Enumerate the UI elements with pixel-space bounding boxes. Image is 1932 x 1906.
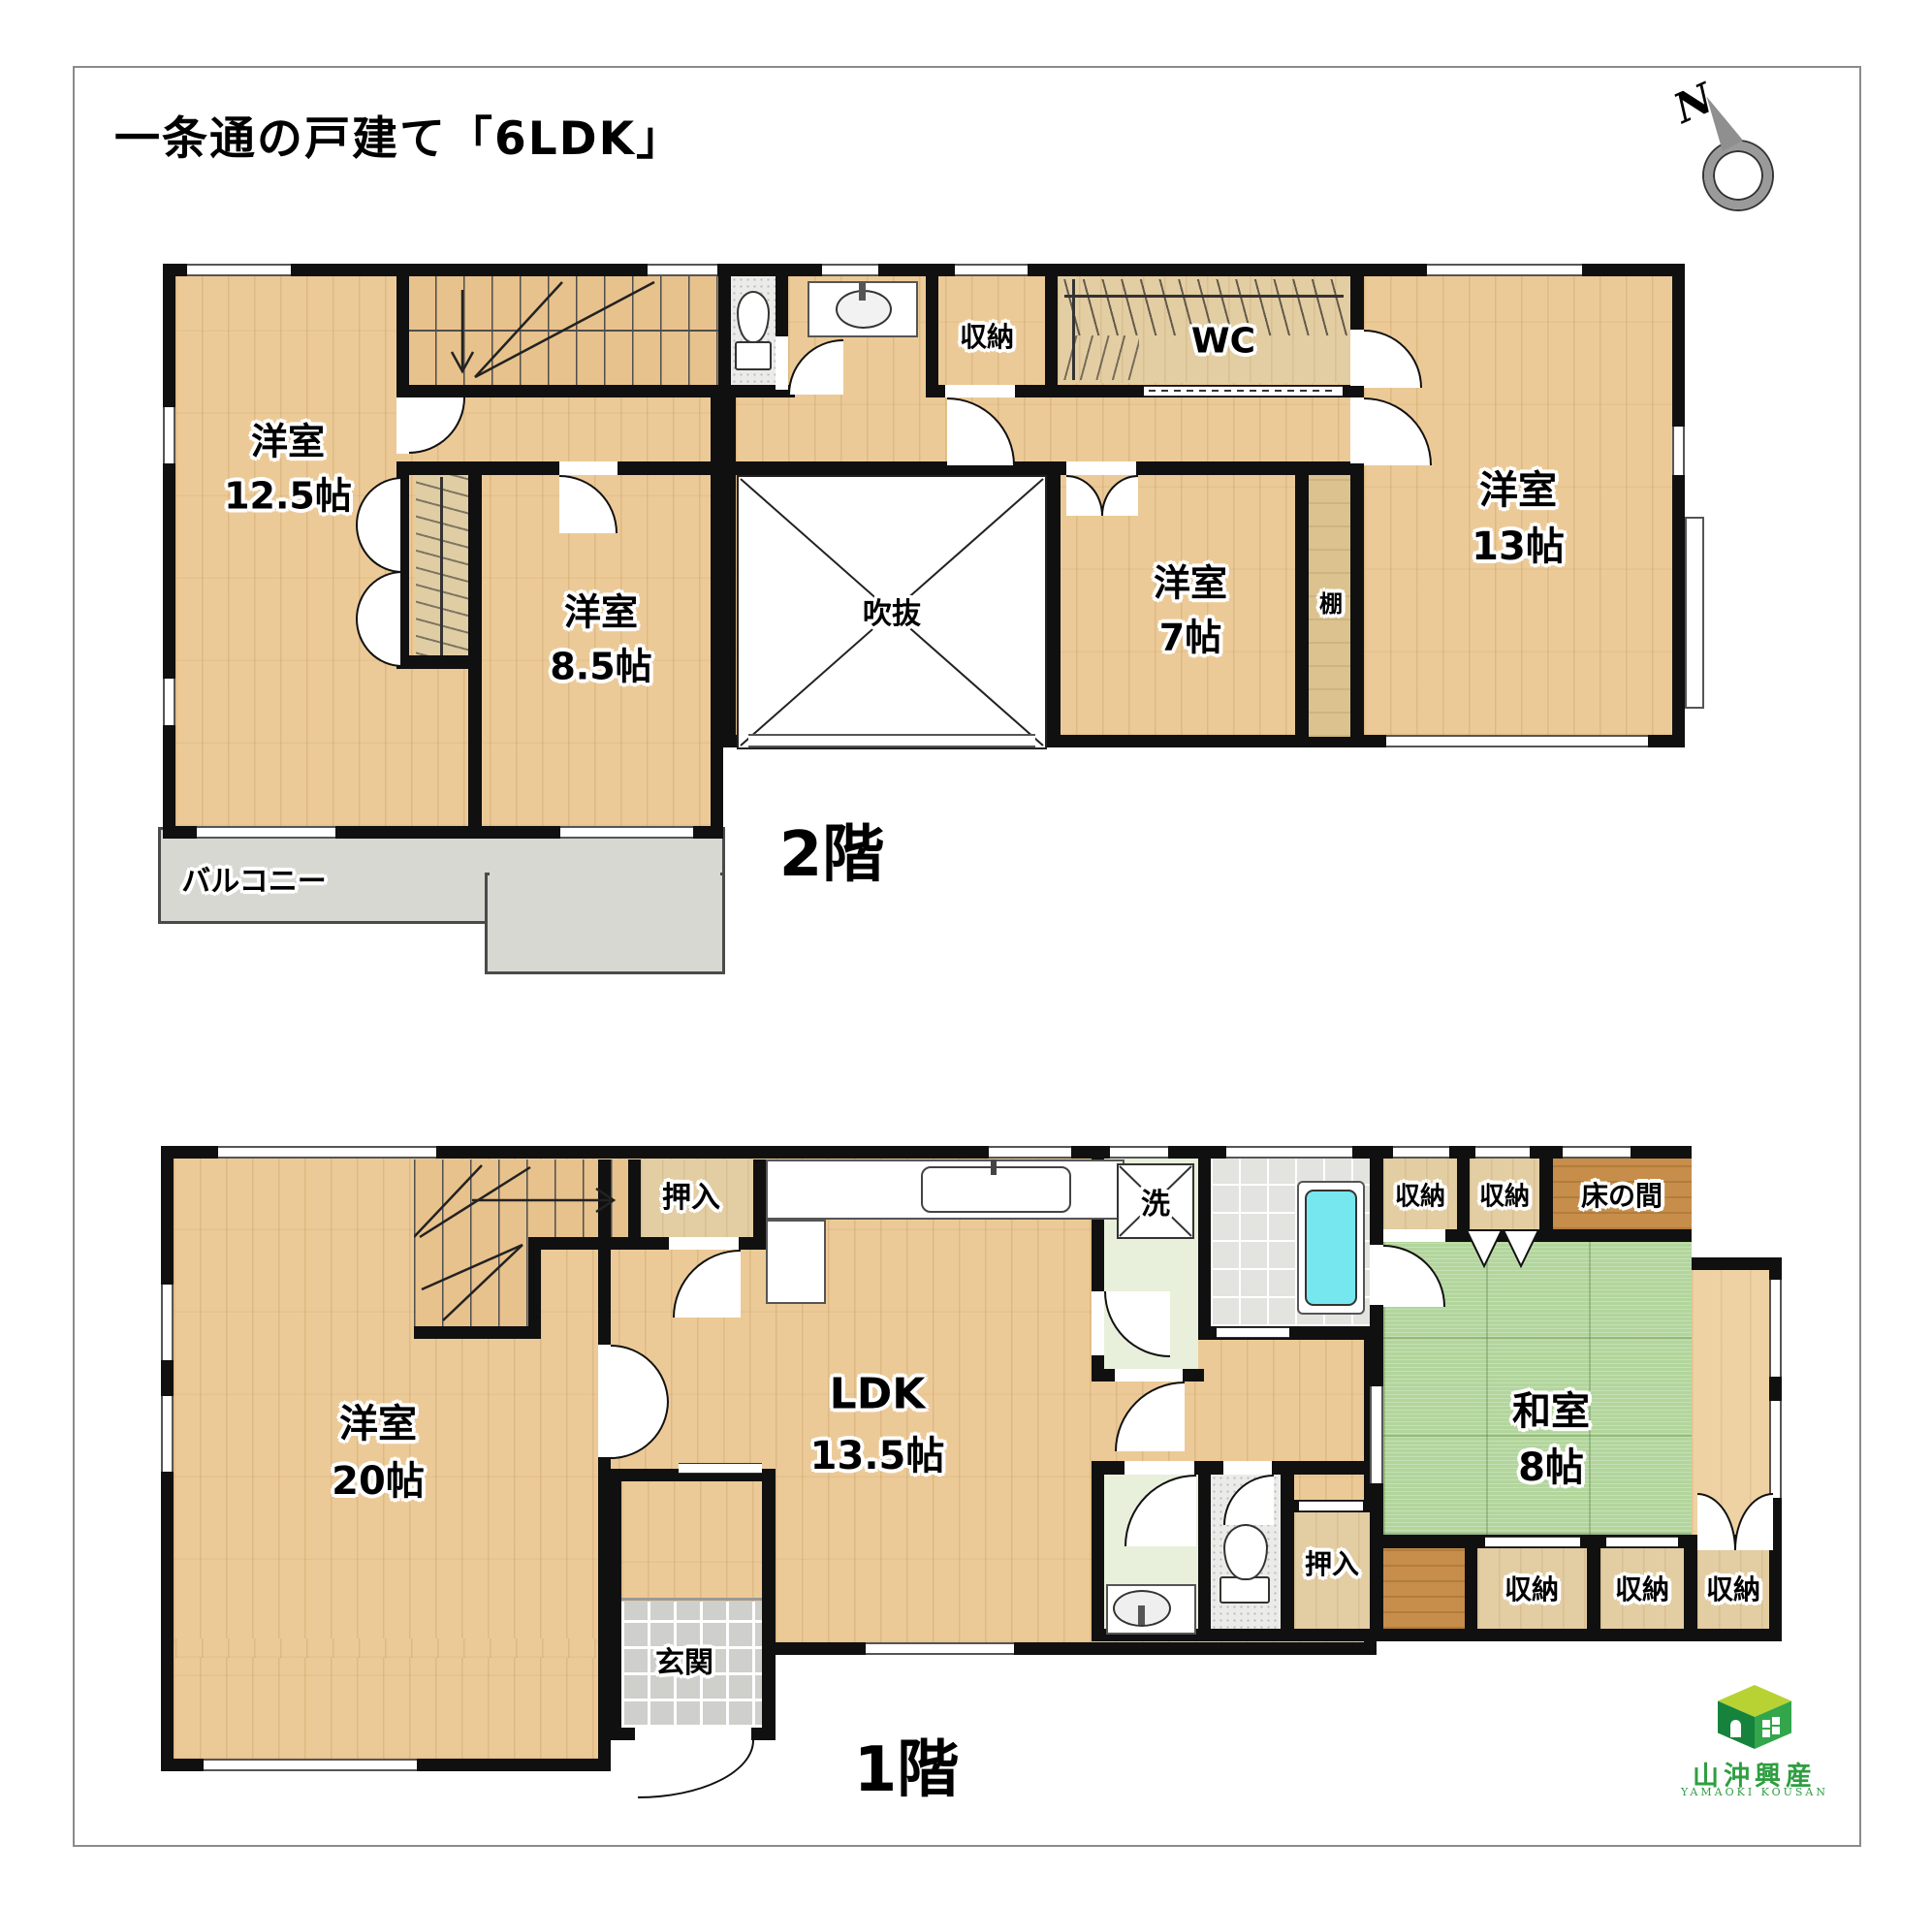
window <box>218 1146 436 1159</box>
floor1-seam <box>175 1638 596 1658</box>
closet-bottom-label: 押入 <box>1305 1543 1359 1582</box>
window <box>866 1642 1014 1655</box>
room-label-yoshitsu7: 洋室 <box>1154 554 1227 607</box>
sliding-door-closet-bottom <box>1299 1501 1363 1511</box>
window <box>1769 1280 1782 1377</box>
logo-house-icon <box>1718 1685 1791 1749</box>
window <box>204 1759 417 1771</box>
room-size-washitsu: 8帖 <box>1518 1436 1584 1492</box>
room-size-ldk: 13.5帖 <box>810 1424 945 1480</box>
genkan-label: 玄関 <box>655 1638 713 1681</box>
door-gap <box>945 385 1015 397</box>
floor1-label: 1階 <box>854 1720 960 1809</box>
toilet-tank-2f-icon <box>735 341 772 370</box>
window <box>1386 735 1648 747</box>
window <box>1769 1401 1782 1498</box>
sliding-door-washitsu-hall <box>1370 1386 1383 1483</box>
window <box>1427 264 1582 276</box>
door-gap <box>669 1237 739 1250</box>
sliding-door-bath <box>1217 1327 1289 1338</box>
wall <box>1281 1461 1294 1641</box>
toilet-tank-1f-icon <box>1219 1576 1270 1604</box>
sliding-door-storage-b1 <box>1485 1537 1580 1547</box>
door-gap <box>1066 461 1136 475</box>
wall <box>1198 1461 1211 1641</box>
compass-north-label: N <box>1667 74 1721 132</box>
window <box>1563 1146 1631 1159</box>
void-railing <box>748 734 1035 747</box>
bifold-doors-storage-top2 <box>1466 1229 1539 1270</box>
window <box>1475 1146 1530 1159</box>
bathtub-icon <box>1305 1190 1357 1306</box>
wall <box>762 1469 776 1740</box>
wall <box>1457 1146 1470 1242</box>
room-label-yoshitsu20: 洋室 <box>339 1392 417 1448</box>
faucet-1f-icon <box>1138 1605 1145 1625</box>
stairs-1f-fan-icon <box>414 1241 528 1326</box>
wc-pipe-icon <box>1064 295 1344 298</box>
kitchen-counter-leg <box>766 1220 826 1304</box>
door-gap <box>598 1345 611 1457</box>
storage-b3-label: 収納 <box>1706 1569 1760 1607</box>
window <box>648 264 717 276</box>
room-size-yoshitsu20: 20帖 <box>332 1449 425 1506</box>
room-label-yoshitsu13: 洋室 <box>1479 459 1557 515</box>
room-label-yoshitsu85: 洋室 <box>564 583 638 636</box>
window <box>989 1146 1071 1159</box>
company-logo: 山沖興産 YAMAOKI KOUSAN <box>1687 1685 1822 1792</box>
storage-label-2f: 収納 <box>960 316 1014 355</box>
wc-label: WC <box>1191 322 1255 362</box>
wall <box>1465 1548 1477 1634</box>
room-label-yoshitsu125: 洋室 <box>251 412 325 465</box>
door-gap <box>396 397 409 454</box>
wall <box>1684 1548 1697 1634</box>
faucet-2f-icon <box>859 283 866 301</box>
compass: N <box>1667 78 1822 242</box>
storage-b2-label: 収納 <box>1615 1569 1669 1607</box>
wall <box>1587 1548 1600 1634</box>
floor-plan-page: 一条通の戸建て「6LDK」 N <box>0 0 1932 1906</box>
window <box>955 264 1028 276</box>
wall <box>598 1159 611 1759</box>
dark-wood-strip <box>1383 1548 1465 1629</box>
room-label-ldk: LDK <box>830 1370 926 1419</box>
window <box>161 1396 174 1472</box>
wall <box>1198 1146 1211 1340</box>
door-gap <box>1115 1369 1183 1382</box>
wall <box>1045 276 1058 396</box>
stairs-1f-arrow-icon <box>414 1159 635 1241</box>
door-gap <box>776 336 788 390</box>
wall <box>1539 1146 1553 1242</box>
wc-pipe-post-icon <box>1072 279 1075 380</box>
door-gap <box>559 461 618 475</box>
compass-ring-icon <box>1704 142 1772 209</box>
wall <box>468 461 482 839</box>
storage-top1-label: 収納 <box>1395 1177 1445 1213</box>
window <box>1226 1146 1352 1159</box>
window <box>1393 1146 1449 1159</box>
sliding-door-genkan-hall <box>679 1463 762 1474</box>
shelf-label: 棚 <box>1313 591 1346 615</box>
balcony-seam <box>490 871 720 880</box>
closet-125-pipe-icon <box>440 477 443 663</box>
storage-b1-label: 収納 <box>1504 1569 1559 1607</box>
window <box>163 407 175 463</box>
floor2-label: 2階 <box>779 805 885 894</box>
window <box>187 264 291 276</box>
closet-top-label: 押入 <box>662 1173 720 1216</box>
wall <box>528 1241 541 1339</box>
window <box>163 679 175 725</box>
stairs-2f-arrow-icon <box>407 276 718 385</box>
window <box>1110 1146 1168 1159</box>
wall <box>1295 475 1309 737</box>
kitchen-faucet-icon <box>991 1159 997 1175</box>
window <box>197 826 335 839</box>
door-gap <box>1350 330 1364 386</box>
storage-top2-label: 収納 <box>1479 1177 1530 1213</box>
sliding-door-wc-track <box>1149 390 1338 392</box>
bay-window <box>1685 517 1704 709</box>
balcony-extension <box>485 873 725 974</box>
door-gap <box>635 1728 751 1740</box>
wall <box>926 276 938 396</box>
tokonoma-label: 床の間 <box>1581 1175 1663 1214</box>
genkan-step-line <box>621 1598 762 1601</box>
floor1-sw-extension <box>161 1642 611 1771</box>
window <box>822 264 878 276</box>
door-gap <box>1124 1461 1194 1475</box>
void-label: 吹抜 <box>863 589 921 632</box>
room-size-yoshitsu85: 8.5帖 <box>550 637 651 690</box>
room-size-yoshitsu7: 7帖 <box>1159 608 1221 661</box>
laundry-label: 洗 <box>1141 1180 1170 1223</box>
window <box>161 1285 174 1360</box>
door-gap <box>1092 1291 1104 1355</box>
room-label-washitsu: 和室 <box>1512 1380 1590 1436</box>
wall <box>1092 1461 1104 1641</box>
room-size-yoshitsu13: 13帖 <box>1472 515 1565 571</box>
door-gap <box>1350 397 1364 463</box>
wall <box>1047 475 1061 737</box>
room-size-yoshitsu125: 12.5帖 <box>224 466 352 520</box>
window <box>1672 427 1685 475</box>
page-title: 一条通の戸建て「6LDK」 <box>114 101 683 168</box>
logo-company-name-en: YAMAOKI KOUSAN <box>1681 1786 1828 1798</box>
wall <box>414 1326 541 1339</box>
sliding-door-storage-b2 <box>1606 1537 1678 1547</box>
wall <box>718 276 731 397</box>
window <box>560 826 693 839</box>
door-gap <box>1383 1229 1445 1242</box>
balcony-label: バルコニー <box>181 857 326 900</box>
door-gap <box>1223 1461 1272 1475</box>
wall <box>396 385 795 397</box>
door-gap <box>1370 1245 1383 1305</box>
